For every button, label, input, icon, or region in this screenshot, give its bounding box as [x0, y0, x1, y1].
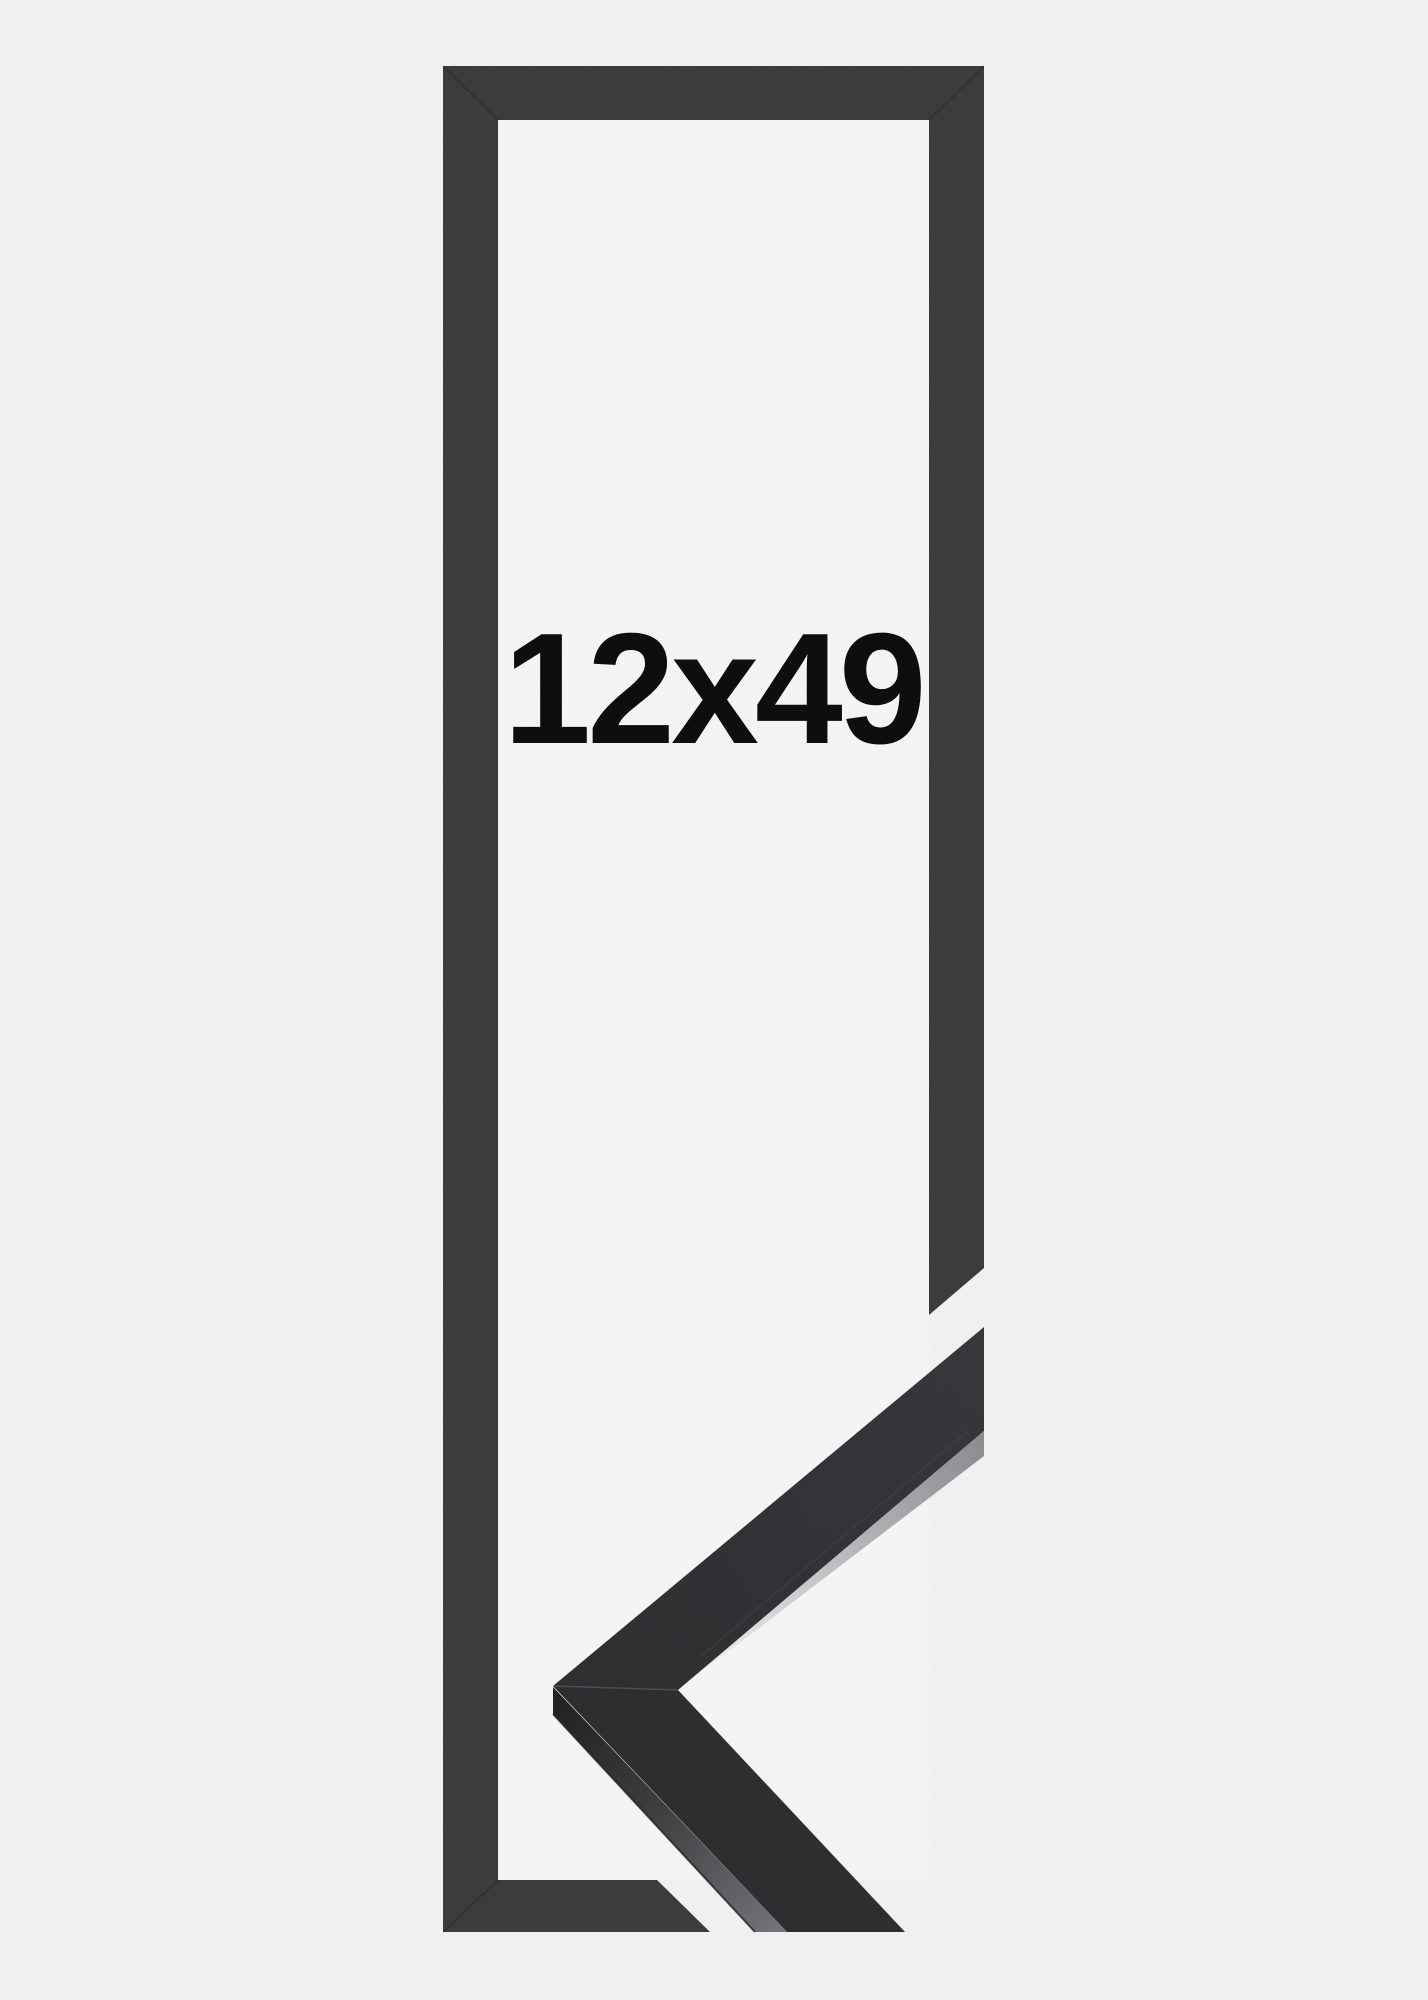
frame-preview-graphic: 12x49 — [0, 0, 1428, 2000]
film-grain-overlay — [0, 0, 1428, 2000]
frame-product-image: 12x49 — [0, 0, 1428, 2000]
